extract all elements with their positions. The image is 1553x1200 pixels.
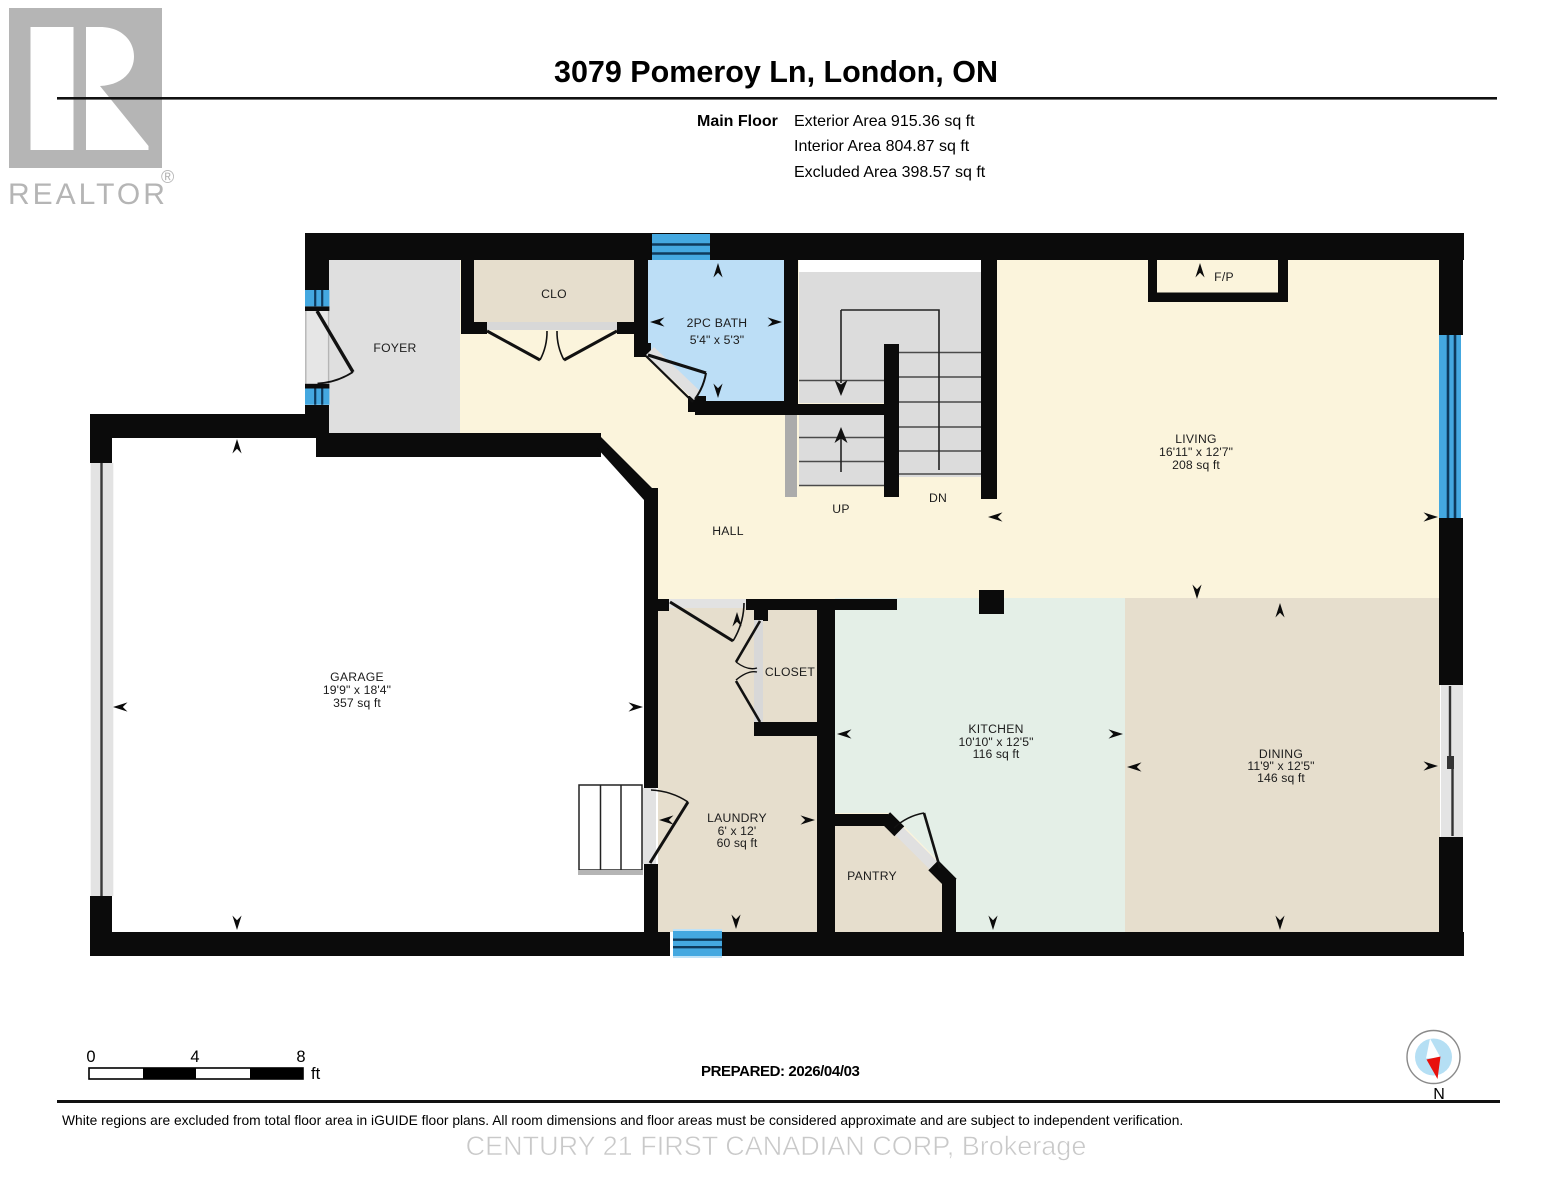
svg-text:CLO: CLO [541, 287, 567, 301]
svg-text:CENTURY 21 FIRST CANADIAN CORP: CENTURY 21 FIRST CANADIAN CORP, Brokerag… [466, 1131, 1087, 1161]
svg-text:LAUNDRY: LAUNDRY [707, 811, 767, 825]
svg-text:CLOSET: CLOSET [765, 665, 816, 679]
svg-text:0: 0 [86, 1048, 95, 1066]
svg-text:357 sq ft: 357 sq ft [333, 696, 381, 710]
svg-text:5'4" x 5'3": 5'4" x 5'3" [690, 333, 744, 347]
svg-text:FOYER: FOYER [373, 341, 416, 355]
svg-text:4: 4 [190, 1048, 199, 1066]
svg-text:Interior Area 804.87 sq ft: Interior Area 804.87 sq ft [794, 138, 970, 155]
svg-text:PREPARED: 2026/04/03: PREPARED: 2026/04/03 [701, 1063, 860, 1080]
svg-text:PANTRY: PANTRY [847, 869, 897, 883]
svg-text:Excluded Area 398.57 sq ft: Excluded Area 398.57 sq ft [794, 164, 986, 181]
svg-text:UP: UP [832, 502, 849, 516]
svg-text:GARAGE: GARAGE [330, 670, 384, 684]
svg-text:®: ® [161, 167, 174, 187]
svg-text:19'9" x 18'4": 19'9" x 18'4" [323, 683, 391, 697]
svg-text:ft: ft [311, 1065, 321, 1083]
svg-text:White regions are excluded fro: White regions are excluded from total fl… [62, 1113, 1183, 1128]
svg-text:LIVING: LIVING [1175, 432, 1216, 446]
svg-text:F/P: F/P [1214, 270, 1234, 284]
svg-text:60 sq ft: 60 sq ft [717, 836, 758, 850]
svg-text:HALL: HALL [712, 524, 744, 538]
svg-text:REALTOR: REALTOR [8, 178, 168, 211]
svg-text:Main Floor: Main Floor [697, 113, 778, 130]
svg-text:16'11" x 12'7": 16'11" x 12'7" [1159, 445, 1233, 459]
svg-text:Exterior Area 915.36 sq ft: Exterior Area 915.36 sq ft [794, 113, 975, 130]
svg-text:8: 8 [296, 1048, 305, 1066]
svg-text:DN: DN [929, 491, 947, 505]
svg-text:146 sq ft: 146 sq ft [1257, 771, 1305, 785]
svg-text:KITCHEN: KITCHEN [968, 722, 1023, 736]
svg-text:2PC BATH: 2PC BATH [687, 316, 748, 330]
svg-text:208 sq ft: 208 sq ft [1172, 458, 1220, 472]
svg-text:3079 Pomeroy Ln, London, ON: 3079 Pomeroy Ln, London, ON [554, 55, 998, 89]
svg-text:116 sq ft: 116 sq ft [973, 747, 1020, 761]
